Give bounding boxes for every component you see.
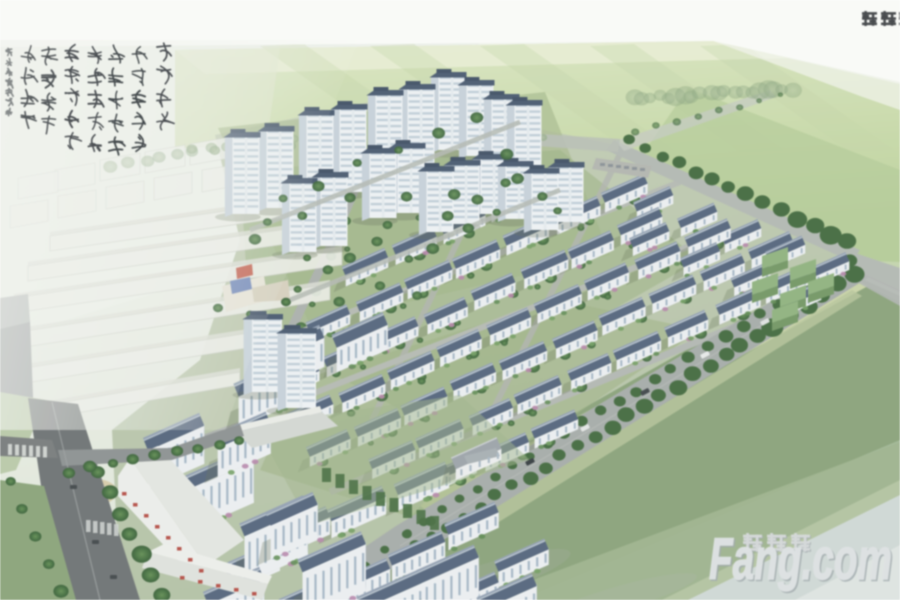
svg-text:Fang.com: Fang.com (709, 527, 892, 592)
